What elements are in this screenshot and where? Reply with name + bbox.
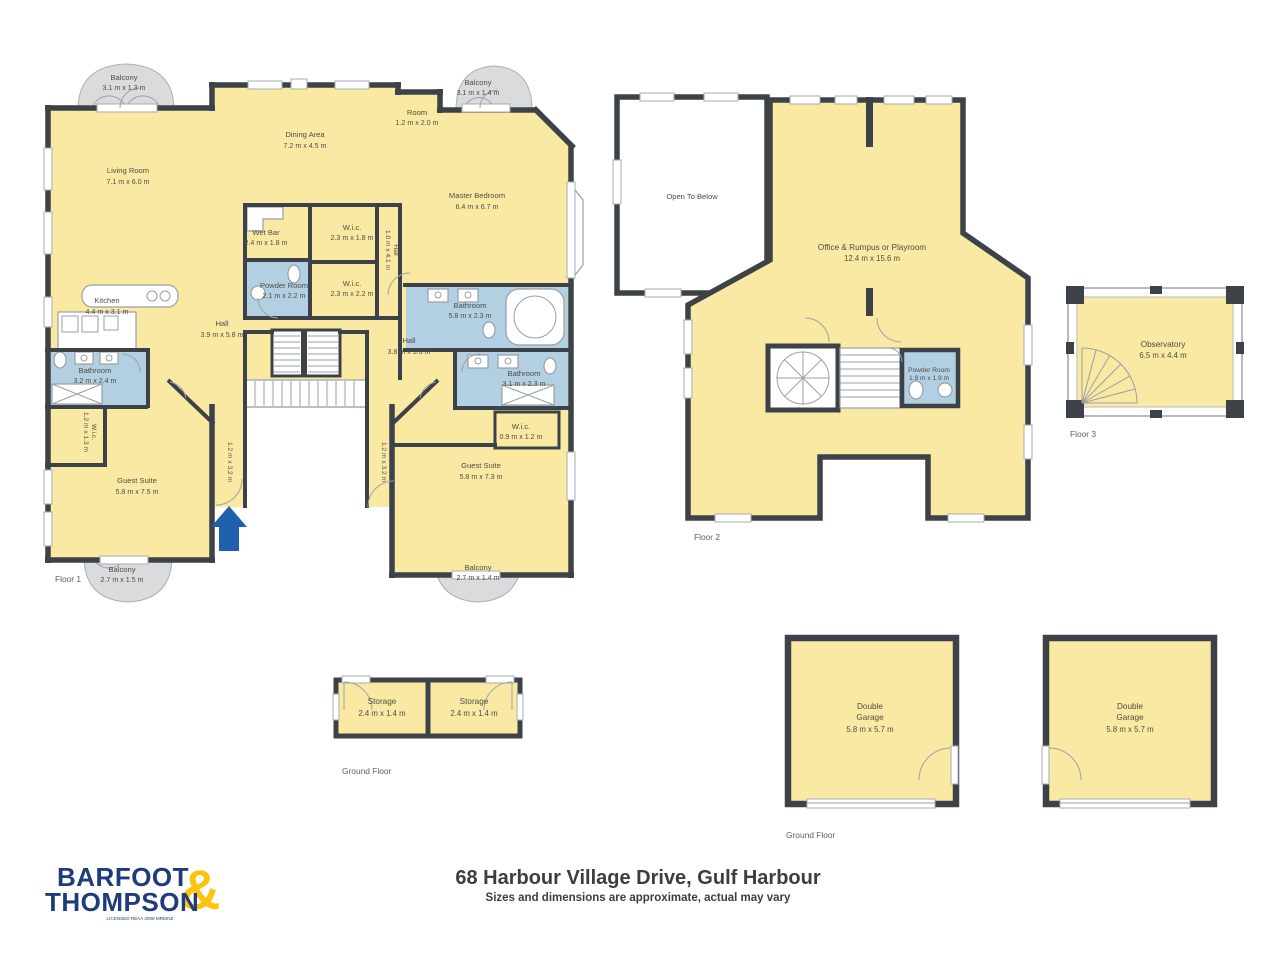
svg-text:4.4 m x 3.1 m: 4.4 m x 3.1 m <box>86 308 129 316</box>
room-label: Double <box>857 702 883 711</box>
toilet-icon <box>544 358 556 374</box>
floor3-plan: Observatory 6.5 m x 4.4 m Floor 3 <box>1066 286 1244 439</box>
garage-plan: Double Garage 5.8 m x 5.7 m Double Garag… <box>786 638 1214 840</box>
svg-text:3.8 m x 3.6 m: 3.8 m x 3.6 m <box>388 348 431 356</box>
room-label: Balcony <box>110 73 137 82</box>
toilet-icon <box>909 381 923 399</box>
svg-text:2.3 m x 1.8 m: 2.3 m x 1.8 m <box>331 234 374 242</box>
footer: & BARFOOT THOMPSON LICENSED REAA 2008 MR… <box>45 858 821 921</box>
room-label: Guest Suite <box>461 461 501 470</box>
svg-text:12.4 m x 15.6 m: 12.4 m x 15.6 m <box>844 254 900 263</box>
room-label: Bathroom <box>454 301 487 310</box>
svg-text:2.3 m x 2.2 m: 2.3 m x 2.2 m <box>331 290 374 298</box>
svg-text:5.8 m x 7.5 m: 5.8 m x 7.5 m <box>116 488 159 496</box>
floor-plan-canvas: Balcony 3.1 m x 1.3 m Living Room 7.1 m … <box>0 0 1280 960</box>
fireplace <box>291 79 307 89</box>
balcony-top-right <box>456 66 532 110</box>
svg-text:1.2 m x 3.2 m: 1.2 m x 3.2 m <box>226 442 233 482</box>
room-label: Double <box>1117 702 1143 711</box>
room-label: Dining Area <box>285 130 325 139</box>
svg-text:Garage: Garage <box>1116 713 1144 722</box>
svg-text:7.1 m x 6.0 m: 7.1 m x 6.0 m <box>107 178 150 186</box>
svg-text:5.8 m x 5.7 m: 5.8 m x 5.7 m <box>1106 725 1153 734</box>
floor2-plan: Open To Below Office & Rumpus or Playroo… <box>613 93 1032 542</box>
room-label: Guest Suite <box>117 476 157 485</box>
entry-arrow <box>211 506 247 551</box>
floor2-stairs <box>840 348 900 408</box>
svg-text:1.9 m x 1.9 m: 1.9 m x 1.9 m <box>909 375 949 382</box>
svg-text:2.7 m x 1.5 m: 2.7 m x 1.5 m <box>101 576 144 584</box>
svg-text:1.2 m x 2.0 m: 1.2 m x 2.0 m <box>396 119 439 127</box>
room-label: Powder Room <box>908 367 950 374</box>
room-label: Bathroom <box>79 366 112 375</box>
svg-text:6.4 m x 6.7 m: 6.4 m x 6.7 m <box>456 203 499 211</box>
room-label: W.i.c. <box>90 424 97 440</box>
svg-text:3.1 m x 1.3 m: 3.1 m x 1.3 m <box>103 84 146 92</box>
room-label: W.i.c. <box>512 422 531 431</box>
svg-text:3.2 m x 2.4 m: 3.2 m x 2.4 m <box>74 377 117 385</box>
room-label: Observatory <box>1141 340 1186 349</box>
room-label: Balcony <box>464 78 491 87</box>
svg-text:2.4 m x 1.4 m: 2.4 m x 1.4 m <box>450 709 497 718</box>
page-title: 68 Harbour Village Drive, Gulf Harbour <box>455 867 821 889</box>
svg-text:0.9 m x 1.2 m: 0.9 m x 1.2 m <box>500 433 543 441</box>
room-label: Powder Room <box>260 281 308 290</box>
room-label: Office & Rumpus or Playroom <box>818 243 926 252</box>
svg-text:2.4 m x 1.4 m: 2.4 m x 1.4 m <box>358 709 405 718</box>
room-label: W.i.c. <box>343 223 362 232</box>
wall-stub-mid <box>866 288 873 316</box>
svg-text:1.0 m x 4.1 m: 1.0 m x 4.1 m <box>384 230 391 270</box>
svg-text:1.2 m x 3.2 m: 1.2 m x 3.2 m <box>380 442 387 482</box>
floor3-label: Floor 3 <box>1070 429 1096 439</box>
storage-plan: Storage 2.4 m x 1.4 m Storage 2.4 m x 1.… <box>333 676 523 776</box>
room-label: W.i.c. <box>343 279 362 288</box>
logo-line2: THOMPSON <box>45 887 199 917</box>
svg-text:3.1 m x 1.4 m: 3.1 m x 1.4 m <box>457 89 500 97</box>
svg-text:2.4 m x 1.8 m: 2.4 m x 1.8 m <box>245 239 288 247</box>
wall-stub-top <box>866 97 873 147</box>
room-label: Open To Below <box>666 192 718 201</box>
svg-text:5.8 m x 2.3 m: 5.8 m x 2.3 m <box>449 312 492 320</box>
room-label: Hall <box>402 336 415 345</box>
room-label: Hall <box>215 319 228 328</box>
room-label: Balcony <box>464 563 491 572</box>
svg-text:2.7 m x 1.4 m: 2.7 m x 1.4 m <box>457 574 500 582</box>
ground-floor-garage-label: Ground Floor <box>786 830 836 840</box>
svg-text:Garage: Garage <box>856 713 884 722</box>
svg-text:5.8 m x 7.3 m: 5.8 m x 7.3 m <box>460 473 503 481</box>
svg-text:7.2 m x 4.5 m: 7.2 m x 4.5 m <box>284 142 327 150</box>
svg-text:5.8 m x 5.7 m: 5.8 m x 5.7 m <box>846 725 893 734</box>
svg-text:1.2 m x 1.3 m: 1.2 m x 1.3 m <box>82 412 89 452</box>
ground-floor-storage-label: Ground Floor <box>342 766 392 776</box>
room-label: Wet Bar <box>252 228 280 237</box>
room-label: Storage <box>460 697 489 706</box>
spiral-staircase <box>768 346 838 410</box>
logo-tagline: LICENSED REAA 2008 MREINZ <box>107 916 174 921</box>
page-subtitle: Sizes and dimensions are approximate, ac… <box>486 892 791 904</box>
svg-text:6.5 m x 4.4 m: 6.5 m x 4.4 m <box>1139 351 1186 360</box>
right-suite-floor <box>392 407 572 575</box>
storage-2 <box>428 680 520 736</box>
floor2-label: Floor 2 <box>694 532 720 542</box>
barfoot-thompson-logo: & BARFOOT THOMPSON LICENSED REAA 2008 MR… <box>45 858 220 921</box>
floor1-plan: Balcony 3.1 m x 1.3 m Living Room 7.1 m … <box>44 64 583 602</box>
room-label: Master Bedroom <box>449 191 505 200</box>
floor-plan-page: Balcony 3.1 m x 1.3 m Living Room 7.1 m … <box>0 0 1280 960</box>
toilet-icon <box>483 322 495 338</box>
entry-void <box>247 408 365 506</box>
svg-text:3.1 m x 2.3 m: 3.1 m x 2.3 m <box>503 380 546 388</box>
sink-icon <box>938 383 952 397</box>
room-label: Kitchen <box>94 296 119 305</box>
floor1-label: Floor 1 <box>55 574 81 584</box>
room-label: Storage <box>368 697 397 706</box>
room-label: Room <box>407 108 427 117</box>
room-label: Hall <box>392 244 399 256</box>
svg-text:2.1 m x 2.2 m: 2.1 m x 2.2 m <box>263 292 306 300</box>
storage-1 <box>336 680 428 736</box>
room-label: Bathroom <box>508 369 541 378</box>
room-label: Living Room <box>107 166 149 175</box>
room-label: Balcony <box>108 565 135 574</box>
svg-text:3.9 m x 5.8 m: 3.9 m x 5.8 m <box>201 331 244 339</box>
bathtub-icon <box>506 289 564 345</box>
